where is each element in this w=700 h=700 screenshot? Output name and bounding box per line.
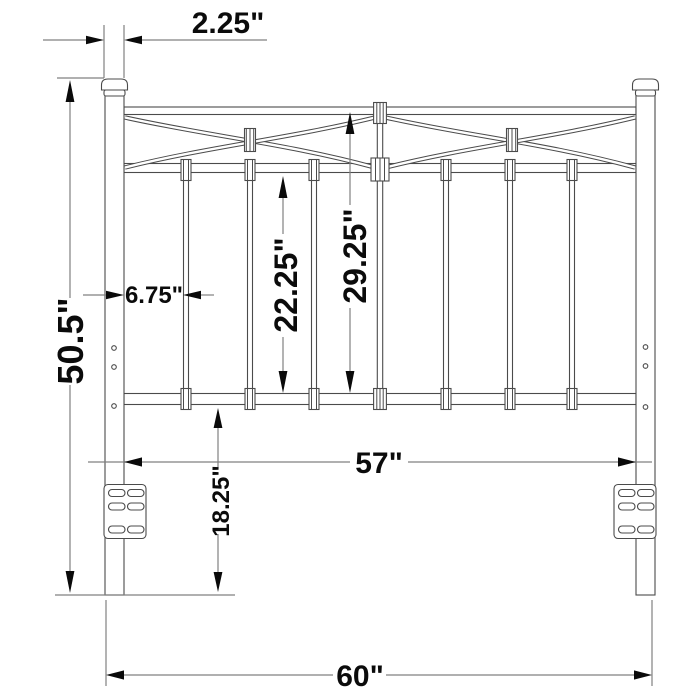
arrowhead (279, 371, 288, 393)
headboard-diagram: 2.25" 50.5" 6.75" 22.25" 29.25" (0, 0, 700, 700)
spindle-collar (567, 160, 577, 181)
arrowhead (346, 371, 355, 393)
spindle (570, 173, 575, 394)
spindle-collar (181, 160, 191, 181)
spindle (508, 173, 513, 394)
spindle (248, 173, 253, 394)
spindle-collar (245, 160, 255, 181)
dim-label-rail-to-floor: 18.25" (208, 465, 235, 536)
arrowhead (618, 457, 636, 466)
dim-label-grill-height: 29.25" (337, 208, 373, 303)
center-divider (377, 115, 382, 394)
spindle-collar (567, 389, 577, 410)
spindle (184, 173, 189, 394)
divider-middle-collar (371, 158, 389, 181)
dimension-post-width: 2.25" (43, 7, 267, 78)
dimension-rail-to-floor: 18.25" (208, 408, 235, 592)
dim-label-overall-width: 60" (336, 660, 384, 693)
brace-collar-left (245, 129, 256, 152)
headboard-drawing (102, 79, 659, 595)
arrowhead (86, 36, 104, 44)
arrowhead (66, 80, 75, 102)
arrowhead (124, 457, 142, 466)
dimension-inner-width: 57" (88, 447, 652, 480)
divider-top-collar (374, 103, 387, 124)
spindle-collar (181, 389, 191, 410)
dim-label-inner-width: 57" (355, 447, 403, 480)
dim-label-post-width: 2.25" (192, 7, 265, 40)
mounting-bracket-left (104, 485, 146, 539)
arrowhead (634, 670, 652, 679)
spindle-collar (441, 389, 451, 410)
arrowhead (66, 571, 75, 593)
dim-label-spindle-spacing: 6.75" (125, 282, 183, 309)
spindle (444, 173, 449, 394)
arrowhead (214, 572, 223, 592)
divider-bottom-collar (374, 389, 387, 410)
spindle-collar (505, 160, 515, 181)
dimension-grill-height: 29.25" (337, 112, 373, 393)
spindle (312, 173, 317, 394)
arrowhead (214, 408, 223, 428)
arrowhead (279, 176, 288, 198)
dimension-spindle-height: 22.25" (268, 176, 304, 393)
dimension-overall-width: 60" (106, 600, 652, 693)
spindle-collar (245, 389, 255, 410)
spindle-collar (309, 389, 319, 410)
dimension-spindle-spacing: 6.75" (83, 282, 214, 309)
spindle-collar (309, 160, 319, 181)
dim-label-overall-height: 50.5" (50, 297, 91, 384)
dimension-overall-height: 50.5" (50, 78, 104, 593)
left-finial (102, 79, 128, 96)
spindle-collar (505, 389, 515, 410)
brace-collar-right (507, 129, 518, 152)
arrowhead (124, 36, 142, 44)
dim-label-spindle-height: 22.25" (268, 237, 304, 332)
mounting-bracket-right (614, 485, 656, 539)
right-finial (633, 79, 659, 96)
arrowhead (106, 670, 124, 679)
spindle-collar (441, 160, 451, 181)
